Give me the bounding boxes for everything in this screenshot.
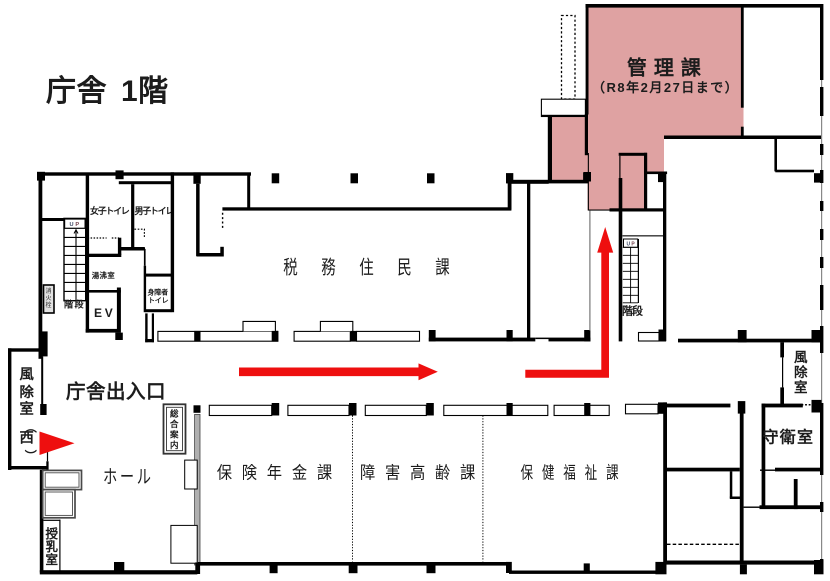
svg-text:風: 風 xyxy=(20,366,35,383)
svg-text:室: 室 xyxy=(794,379,808,395)
svg-text:除: 除 xyxy=(794,364,808,380)
svg-text:保険年金課: 保険年金課 xyxy=(217,464,342,483)
svg-text:UP: UP xyxy=(627,241,636,247)
svg-text:管理課: 管理課 xyxy=(627,55,708,79)
svg-text:火: 火 xyxy=(46,295,52,302)
svg-text:室: 室 xyxy=(46,552,59,567)
svg-text:ホール: ホール xyxy=(103,466,154,487)
svg-text:授: 授 xyxy=(46,526,59,541)
svg-text:トイレ: トイレ xyxy=(148,297,169,305)
svg-text:女子トイレ: 女子トイレ xyxy=(90,205,130,216)
svg-text:保健福祉課: 保健福祉課 xyxy=(521,464,628,483)
svg-text:EV: EV xyxy=(94,306,115,320)
svg-text:西: 西 xyxy=(20,430,34,447)
svg-text:庁舎出入口: 庁舎出入口 xyxy=(66,380,166,403)
svg-text:除: 除 xyxy=(20,383,35,401)
svg-text:栓: 栓 xyxy=(46,301,52,309)
svg-text:乳: 乳 xyxy=(46,539,59,554)
svg-text:室: 室 xyxy=(20,400,34,418)
svg-text:階段: 階段 xyxy=(64,298,85,309)
svg-text:）: ） xyxy=(24,450,39,462)
svg-text:風: 風 xyxy=(794,350,808,365)
svg-text:男子トイレ: 男子トイレ xyxy=(135,206,175,216)
svg-text:UP: UP xyxy=(70,222,81,228)
svg-text:身障者: 身障者 xyxy=(147,288,169,297)
svg-text:内: 内 xyxy=(170,440,179,450)
svg-text:障害高齢課: 障害高齢課 xyxy=(360,464,485,483)
svg-text:合: 合 xyxy=(169,419,179,429)
svg-text:税務住民課: 税務住民課 xyxy=(283,257,473,278)
svg-text:（R8年2月27日まで）: （R8年2月27日まで） xyxy=(592,80,739,95)
svg-text:案: 案 xyxy=(169,430,179,440)
svg-text:守衛室: 守衛室 xyxy=(763,428,815,447)
svg-text:総: 総 xyxy=(170,409,179,419)
svg-text:階段: 階段 xyxy=(622,304,643,318)
svg-text:消: 消 xyxy=(46,287,52,295)
svg-text:湯沸室: 湯沸室 xyxy=(92,270,115,280)
